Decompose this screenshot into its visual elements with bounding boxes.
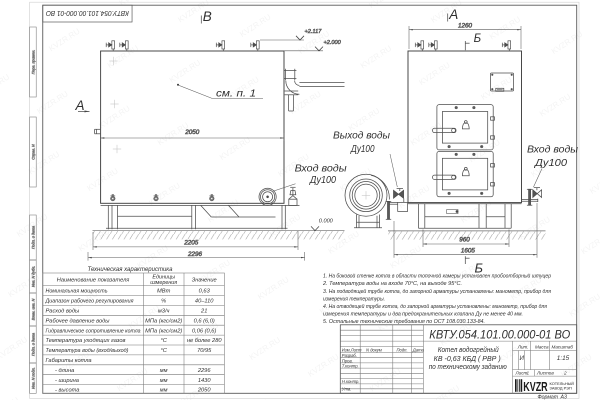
- svg-text:Ду100: Ду100: [350, 143, 374, 155]
- svg-text:KVZR.RU: KVZR.RU: [588, 169, 600, 196]
- svg-text:измерения температуры.: измерения температуры.: [323, 296, 385, 302]
- svg-text:Значение: Значение: [192, 278, 217, 284]
- svg-text:ЗАВОД РЭП: ЗАВОД РЭП: [550, 386, 572, 391]
- svg-text:Подп.: Подп.: [397, 347, 408, 352]
- svg-text:Подп. и дата: Подп. и дата: [31, 333, 35, 356]
- svg-text:1430: 1430: [198, 378, 211, 384]
- svg-text:Справ. N: Справ. N: [32, 144, 36, 160]
- svg-text:KVZR.RU: KVZR.RU: [429, 0, 464, 25]
- svg-text:KVZR.RU: KVZR.RU: [256, 275, 291, 302]
- svg-text:- ширина: - ширина: [46, 378, 79, 384]
- svg-text:Листов: Листов: [536, 371, 554, 376]
- svg-text:KVZR.RU: KVZR.RU: [106, 43, 141, 70]
- svg-text:0,06 (0,6): 0,06 (0,6): [192, 328, 216, 334]
- svg-text:1260: 1260: [458, 23, 473, 30]
- svg-text:KVZR.RU: KVZR.RU: [359, 44, 394, 71]
- svg-text:А3: А3: [560, 394, 567, 400]
- svg-text:Изм.Лист: Изм.Лист: [342, 347, 362, 352]
- svg-text:KVZR.RU: KVZR.RU: [47, 27, 82, 54]
- svg-text:21: 21: [200, 309, 207, 315]
- svg-text:Наименование показателя: Наименование показателя: [57, 278, 130, 284]
- svg-text:KVZR.RU: KVZR.RU: [459, 198, 494, 225]
- svg-text:1605: 1605: [461, 247, 476, 254]
- svg-text:МВт: МВт: [157, 289, 171, 295]
- svg-text:KVZR.RU: KVZR.RU: [35, 89, 70, 116]
- svg-text:KVZR.RU: KVZR.RU: [85, 166, 120, 193]
- svg-text:Б: Б: [474, 33, 482, 45]
- svg-text:KVZR.RU: KVZR.RU: [417, 60, 452, 87]
- svg-text:0,6 (6,0): 0,6 (6,0): [194, 318, 215, 324]
- svg-text:Котел водогрейный: Котел водогрейный: [438, 346, 499, 354]
- svg-text:+2.000: +2.000: [324, 40, 342, 46]
- svg-text:не более 280: не более 280: [187, 338, 223, 344]
- svg-text:1: 1: [527, 371, 530, 376]
- svg-text:см. п. 1: см. п. 1: [216, 89, 256, 100]
- svg-text:KVZR.RU: KVZR.RU: [118, 0, 153, 8]
- svg-text:МПа (кгс/см2): МПа (кгс/см2): [145, 318, 182, 324]
- svg-text:Лит.: Лит.: [517, 345, 529, 350]
- svg-text:2050: 2050: [184, 129, 200, 136]
- svg-text:KVZR: KVZR: [523, 379, 548, 394]
- svg-text:40–110: 40–110: [195, 299, 214, 305]
- svg-text:Дата: Дата: [412, 347, 425, 352]
- svg-text:1:15: 1:15: [557, 355, 570, 362]
- svg-text:+2.117: +2.117: [305, 29, 323, 35]
- svg-text:Вход воды: Вход воды: [295, 163, 347, 175]
- svg-text:мм: мм: [160, 378, 168, 384]
- svg-text:МПа (кгс/см2): МПа (кгс/см2): [145, 328, 182, 334]
- svg-text:измерения: измерения: [150, 280, 177, 286]
- svg-text:KVZR.RU: KVZR.RU: [427, 383, 462, 400]
- svg-text:2. Температура воды на входе: 2. Температура воды на входе 70°С, на вы…: [322, 281, 462, 287]
- svg-text:KVZR.RU: KVZR.RU: [0, 395, 21, 400]
- svg-text:Габариты котла: Габариты котла: [46, 358, 92, 364]
- svg-text:KVZR.RU: KVZR.RU: [238, 12, 273, 39]
- svg-text:Номинальная мощность: Номинальная мощность: [46, 289, 108, 295]
- svg-text:Расход воды: Расход воды: [46, 309, 80, 315]
- svg-text:°С: °С: [161, 348, 168, 354]
- svg-text:м3/ч: м3/ч: [158, 309, 170, 315]
- svg-text:1. На боковой стенке котла в: 1. На боковой стенке котла в области топ…: [323, 273, 552, 280]
- svg-text:Техническая характеристика: Техническая характеристика: [88, 267, 174, 273]
- svg-text:Перв. примен.: Перв. примен.: [32, 50, 36, 75]
- svg-text:А: А: [75, 98, 85, 113]
- svg-text:70/95: 70/95: [197, 348, 212, 354]
- svg-text:Масса: Масса: [535, 345, 549, 350]
- svg-text:измерения температуры и два пр: измерения температуры и два предохраните…: [323, 312, 523, 318]
- svg-text:КВТУ.054.101.00.000-01 ВО: КВТУ.054.101.00.000-01 ВО: [45, 9, 129, 16]
- svg-text:2050: 2050: [197, 388, 211, 394]
- svg-text:KVZR.RU: KVZR.RU: [580, 229, 600, 256]
- svg-text:KVZR.RU: KVZR.RU: [248, 335, 283, 362]
- svg-text:по техническому заданию: по техническому заданию: [429, 363, 508, 371]
- svg-text:Формат: Формат: [538, 394, 559, 400]
- svg-text:Инв. N дубл.: Инв. N дубл.: [31, 266, 35, 287]
- svg-text:0.000: 0.000: [319, 219, 334, 225]
- svg-text:Н.контр.: Н.контр.: [342, 379, 360, 384]
- svg-text:Т.контр.: Т.контр.: [342, 364, 359, 369]
- svg-text:Температура воды (вход/выход): Температура воды (вход/выход): [46, 348, 129, 354]
- svg-text:- высота: - высота: [46, 388, 80, 394]
- svg-text:KVZR.RU: KVZR.RU: [538, 92, 573, 119]
- svg-text:Масштаб: Масштаб: [552, 345, 574, 350]
- svg-text:Разраб.: Разраб.: [342, 353, 357, 358]
- svg-text:%: %: [161, 299, 166, 305]
- svg-text:Температура уходящих газов: Температура уходящих газов: [46, 338, 126, 344]
- svg-text:2205: 2205: [183, 239, 199, 246]
- svg-text:Ду100: Ду100: [534, 157, 567, 169]
- svg-text:KVZR.RU: KVZR.RU: [497, 338, 532, 365]
- svg-text:Подп. и дата: Подп. и дата: [32, 226, 36, 249]
- svg-text:Ду100: Ду100: [309, 174, 336, 186]
- svg-text:KVZR.RU: KVZR.RU: [0, 72, 11, 99]
- svg-text:Взам. инв. N: Взам. инв. N: [31, 298, 35, 320]
- svg-text:Рабочее давление воды: Рабочее давление воды: [46, 318, 111, 324]
- svg-text:Вход воды: Вход воды: [527, 143, 578, 155]
- svg-text:960: 960: [459, 237, 470, 244]
- svg-text:2: 2: [563, 371, 567, 376]
- svg-text:И: И: [520, 355, 525, 362]
- svg-text:Диапазон рабочего регулировани: Диапазон рабочего регулирования: [45, 299, 134, 305]
- svg-text:- длина: - длина: [46, 368, 75, 374]
- svg-text:°С: °С: [161, 338, 168, 344]
- svg-text:А: А: [448, 7, 458, 22]
- svg-text:КВТУ.054.101.00.000-01 ВО: КВТУ.054.101.00.000-01 ВО: [429, 328, 570, 342]
- svg-text:5. Остальные технические треб: 5. Остальные технические требования по О…: [323, 319, 485, 325]
- svg-text:KVZR.RU: KVZR.RU: [409, 121, 444, 148]
- svg-text:KVZR.RU: KVZR.RU: [368, 367, 403, 394]
- svg-text:KVZR.RU: KVZR.RU: [7, 272, 42, 299]
- svg-text:2296: 2296: [197, 368, 211, 374]
- svg-text:N докум: N докум: [366, 347, 382, 352]
- svg-text:Утв.: Утв.: [342, 387, 352, 392]
- svg-text:KVZR.RU: KVZR.RU: [127, 304, 162, 331]
- svg-text:KVZR.RU: KVZR.RU: [568, 292, 600, 319]
- svg-text:KVZR.RU: KVZR.RU: [306, 352, 341, 379]
- svg-text:KVZR.RU: KVZR.RU: [206, 198, 241, 225]
- svg-text:KVZR.RU: KVZR.RU: [115, 366, 150, 393]
- svg-text:KVZR.RU: KVZR.RU: [168, 58, 203, 85]
- svg-text:3. На подводящей трубе котла,: 3. На подводящей трубе котла, до запорно…: [323, 288, 552, 295]
- svg-text:0,63: 0,63: [199, 289, 211, 295]
- svg-text:4. На отводящей трубе котла,: 4. На отводящей трубе котла, до запорной…: [323, 303, 548, 310]
- svg-text:Инв. N подл.: Инв. N подл.: [32, 367, 36, 389]
- svg-text:KVZR.RU: KVZR.RU: [467, 138, 502, 165]
- svg-text:KVZR.RU: KVZR.RU: [0, 335, 29, 362]
- svg-text:В: В: [203, 9, 212, 24]
- svg-text:КВ -0,63 КБД ( РВР ): КВ -0,63 КБД ( РВР ): [434, 356, 501, 363]
- svg-text:2296: 2296: [187, 251, 203, 258]
- svg-text:Выход воды: Выход воды: [333, 130, 390, 142]
- svg-text:KVZR.RU: KVZR.RU: [488, 15, 523, 42]
- svg-text:Гидравлическое сопротивление к: Гидравлическое сопротивление котла: [46, 328, 141, 334]
- svg-text:KVZR.RU: KVZR.RU: [218, 135, 253, 162]
- svg-text:мм: мм: [160, 388, 168, 394]
- svg-text:мм: мм: [160, 368, 168, 374]
